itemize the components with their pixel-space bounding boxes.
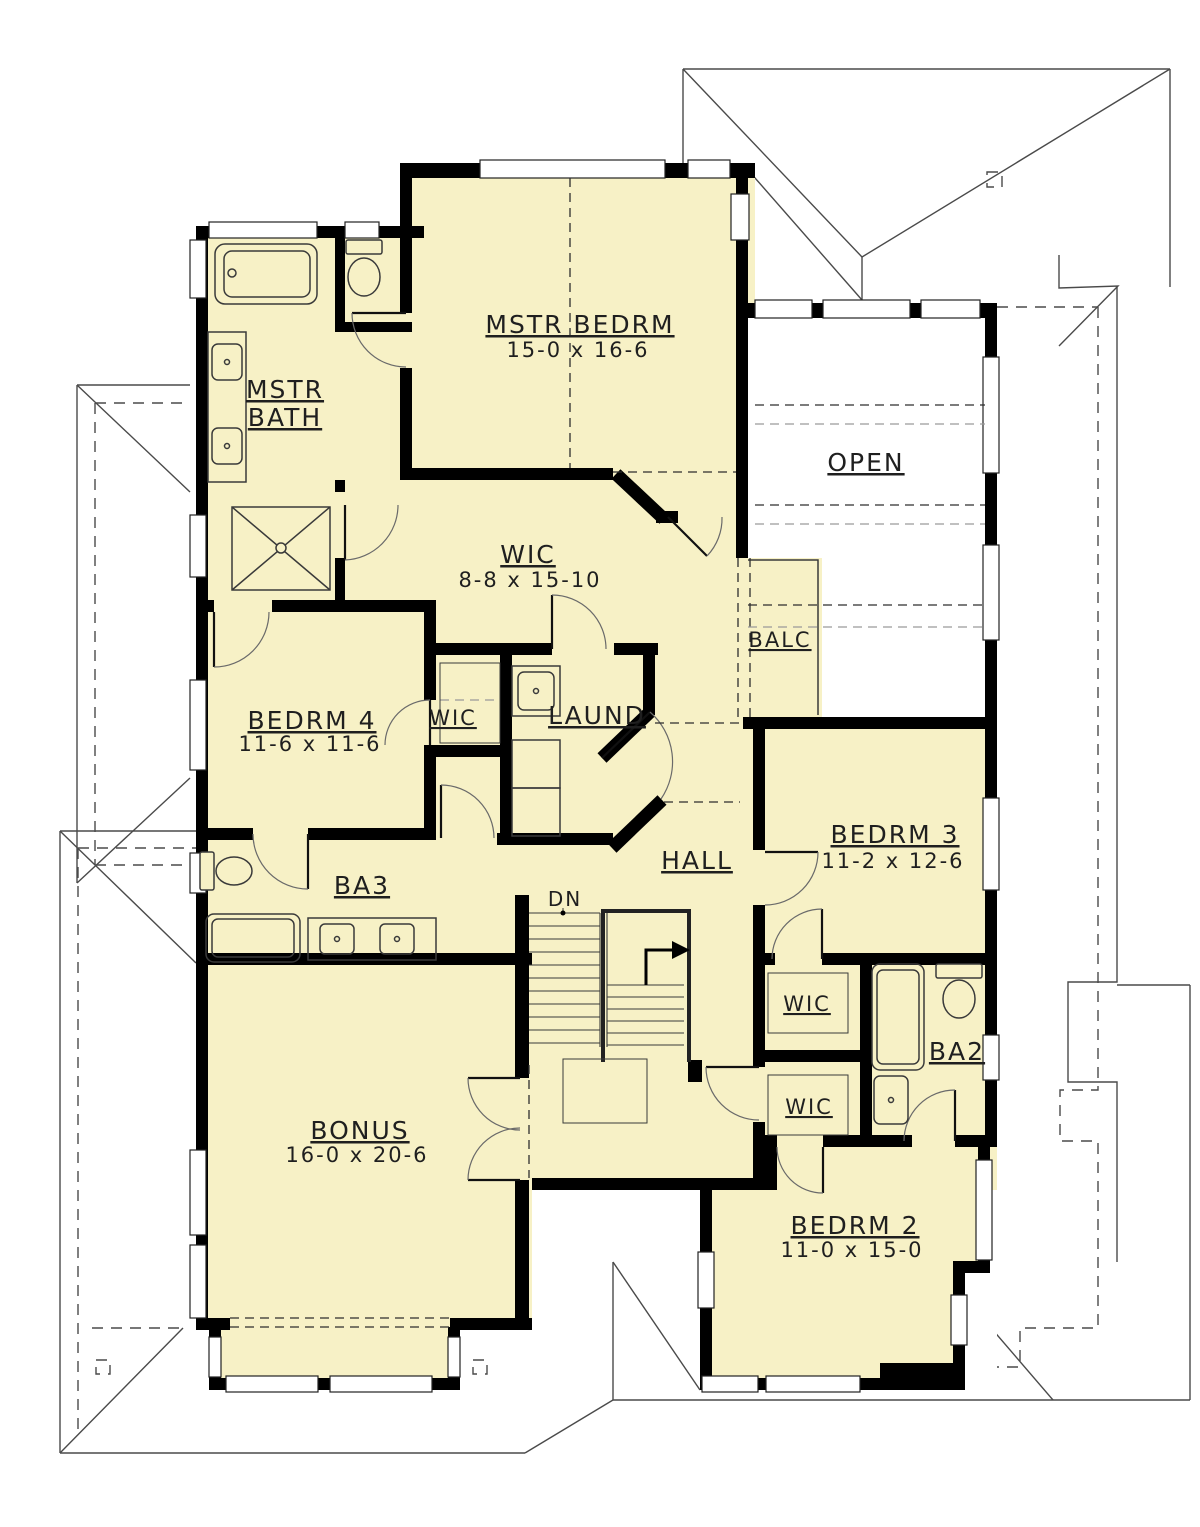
room-area-bedrm2 — [700, 1135, 990, 1390]
window — [190, 680, 206, 770]
window — [330, 1376, 432, 1392]
stairs-dn-label: DN — [548, 887, 582, 911]
window — [983, 798, 999, 890]
room-area-bonus — [196, 1190, 532, 1330]
room-label-wic-bedrm2: WIC — [785, 1095, 833, 1119]
floor-plan: MSTR BEDRM 15-0 x 16-6 MSTR BATH WIC 8-8… — [0, 0, 1200, 1527]
room-label-wic-hall: WIC — [429, 706, 477, 730]
room-label-laund: LAUND — [548, 701, 646, 730]
room-dims-wic-master: 8-8 x 15-10 — [458, 568, 601, 592]
window — [190, 240, 206, 298]
room-label-wic-master: WIC — [500, 540, 556, 569]
window — [480, 160, 665, 178]
toilet-icon — [346, 240, 382, 296]
room-label-open: OPEN — [827, 448, 904, 477]
room-label-bonus: BONUS — [310, 1116, 409, 1145]
room-label-balc: BALC — [748, 628, 811, 652]
window — [190, 1150, 206, 1235]
room-label-ba2: BA2 — [929, 1037, 985, 1066]
room-label-bedrm2: BEDRM 2 — [791, 1211, 920, 1240]
room-label-mstr-bath-1: MSTR — [246, 375, 324, 404]
window — [688, 160, 730, 178]
room-dims-bedrm2: 11-0 x 15-0 — [780, 1238, 923, 1262]
floor-plan-svg: MSTR BEDRM 15-0 x 16-6 MSTR BATH WIC 8-8… — [0, 0, 1200, 1527]
window — [823, 300, 910, 318]
room-dims-bonus: 16-0 x 20-6 — [285, 1143, 428, 1167]
window — [755, 300, 812, 318]
window — [766, 1376, 860, 1392]
window — [190, 515, 206, 577]
room-label-bedrm3: BEDRM 3 — [831, 820, 960, 849]
room-label-bedrm4: BEDRM 4 — [248, 706, 377, 735]
window — [976, 1160, 992, 1260]
room-dims-bedrm4: 11-6 x 11-6 — [238, 732, 381, 756]
room-label-wic-bedrm3: WIC — [783, 992, 831, 1016]
room-label-ba3: BA3 — [334, 871, 390, 900]
window — [209, 1337, 221, 1377]
room-label-mstr-bath-2: BATH — [248, 403, 322, 432]
window — [190, 1245, 206, 1318]
window — [983, 545, 999, 640]
window — [921, 300, 980, 318]
window — [983, 357, 999, 473]
window — [209, 222, 317, 238]
room-label-mstr-bedrm: MSTR BEDRM — [485, 310, 674, 339]
room-dims-mstr-bedrm: 15-0 x 16-6 — [506, 338, 649, 362]
room-dims-bedrm3: 11-2 x 12-6 — [821, 849, 964, 873]
window — [731, 194, 749, 240]
roof-post-marker — [96, 1360, 110, 1374]
window — [698, 1252, 714, 1308]
window — [345, 222, 379, 238]
window — [226, 1376, 318, 1392]
exterior-notch — [965, 1261, 997, 1390]
window — [951, 1295, 967, 1345]
window — [983, 1035, 999, 1080]
room-label-hall: HALL — [661, 846, 733, 875]
window — [448, 1337, 460, 1377]
roof-post-marker — [473, 1360, 487, 1374]
room-area-mid-band — [196, 612, 765, 1190]
window — [702, 1376, 758, 1392]
